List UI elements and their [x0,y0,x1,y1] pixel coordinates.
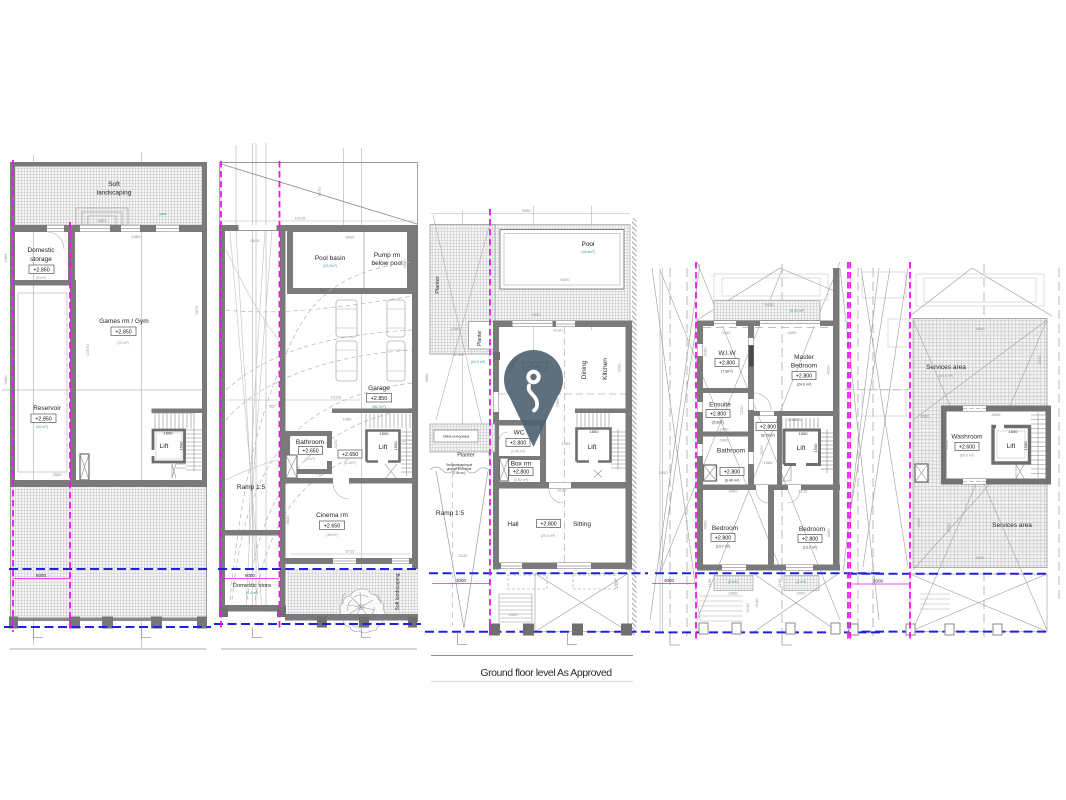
svg-text:9370: 9370 [194,305,199,315]
svg-text:+2.850: +2.850 [115,330,131,336]
svg-text:Pool: Pool [581,241,595,248]
svg-text:10115: 10115 [295,216,307,221]
svg-text:3140: 3140 [754,598,759,608]
svg-text:4200: 4200 [946,523,951,533]
svg-text:565: 565 [269,404,276,409]
svg-text:3400: 3400 [729,489,739,494]
svg-text:1585: 1585 [764,460,774,465]
svg-text:Master: Master [794,354,815,361]
svg-text:landscaping: landscaping [97,190,132,197]
svg-text:+2.800: +2.800 [796,374,812,380]
svg-text:Soft landscaping: Soft landscaping [395,573,401,610]
svg-text:Lift: Lift [379,444,388,451]
svg-text:Lift: Lift [797,445,806,452]
svg-text:Bedroom: Bedroom [712,525,738,532]
svg-text:Soft: Soft [108,181,120,188]
svg-text:-5.100: -5.100 [452,352,464,357]
svg-text:3470: 3470 [759,445,764,455]
svg-text:(86.7m²): (86.7m²) [372,405,386,409]
svg-text:Lift: Lift [588,444,597,451]
svg-text:+2.800: +2.800 [724,470,740,476]
svg-text:Garage: Garage [368,385,390,392]
svg-text:Washroom: Washroom [951,434,982,441]
svg-text:Box rm: Box rm [511,461,532,468]
svg-text:3215: 3215 [799,489,809,494]
svg-text:6000: 6000 [346,235,356,240]
svg-text:1500: 1500 [813,443,818,453]
svg-text:+2.650: +2.650 [342,452,358,458]
svg-text:(7.6m²): (7.6m²) [721,370,733,374]
svg-text:1500: 1500 [164,431,174,436]
svg-text:+2.800: +2.800 [802,537,818,543]
svg-text:Domestic store: Domestic store [233,583,272,589]
svg-text:1500: 1500 [590,429,600,434]
svg-text:+2.850: +2.850 [371,396,387,402]
svg-text:6715: 6715 [346,549,356,554]
svg-text:Dining: Dining [581,360,588,379]
svg-text:Hall: Hall [507,521,519,528]
svg-text:+2.800: +2.800 [719,361,735,367]
svg-text:(2 m²): (2 m²) [796,580,806,584]
svg-text:+2.800: +2.800 [540,522,556,528]
svg-text:1500: 1500 [393,441,398,451]
svg-text:2000: 2000 [729,591,739,596]
svg-text:1000: 1000 [451,326,461,331]
svg-text:3670: 3670 [317,187,322,197]
svg-text:+2.800: +2.800 [760,425,776,431]
svg-text:Kitchen: Kitchen [602,358,609,380]
svg-text:Games rm / Gym: Games rm / Gym [99,318,148,325]
svg-text:(60 m³): (60 m³) [36,425,48,429]
svg-text:3180: 3180 [703,347,708,357]
svg-text:1500: 1500 [799,431,809,436]
svg-text:2850: 2850 [424,373,429,383]
svg-text:2500: 2500 [53,472,63,477]
svg-text:1820: 1820 [98,218,108,223]
svg-text:Planter: Planter [477,330,483,346]
svg-text:2465: 2465 [3,253,8,263]
svg-text:(1.45 m²): (1.45 m²) [511,450,526,454]
svg-text:1100: 1100 [777,578,782,587]
svg-text:Bathroom: Bathroom [717,448,745,455]
svg-text:(6.1m²): (6.1m²) [344,461,356,465]
svg-text:Bedroom: Bedroom [791,363,817,370]
svg-text:9080: 9080 [3,375,8,385]
svg-text:2400: 2400 [720,427,730,432]
svg-text:2800: 2800 [402,259,407,269]
svg-text:Ensuite: Ensuite [709,402,731,409]
svg-text:storage: storage [30,256,52,263]
svg-text:6130: 6130 [558,488,568,493]
svg-text:3000: 3000 [659,470,669,475]
svg-text:Ramp 1:5: Ramp 1:5 [237,484,266,491]
svg-text:Sitting: Sitting [573,521,591,528]
svg-text:9000: 9000 [36,573,47,578]
svg-text:9930: 9930 [522,208,532,213]
svg-text:(5.5m²): (5.5m²) [712,421,724,425]
svg-text:(6.46 m²): (6.46 m²) [725,479,740,483]
svg-text:1500: 1500 [380,431,390,436]
svg-text:(1.62 m²): (1.62 m²) [514,478,529,482]
svg-text:(24.0 m²): (24.0 m²) [797,383,812,387]
svg-text:6000: 6000 [561,277,571,282]
svg-text:5615: 5615 [251,238,261,243]
svg-text:1500: 1500 [1023,441,1028,451]
svg-text:+2.800: +2.800 [710,412,726,418]
svg-text:Planter: Planter [435,276,441,294]
svg-text:4255: 4255 [788,330,798,335]
svg-text:1490: 1490 [562,441,572,446]
svg-text:Bedroom: Bedroom [799,526,825,533]
svg-text:Ground floor level As Approved: Ground floor level As Approved [480,667,612,679]
svg-text:(13.2 m²): (13.2 m²) [803,546,818,550]
svg-text:Domestic: Domestic [27,247,55,254]
svg-text:5085: 5085 [992,412,1002,417]
svg-text:Pump rm: Pump rm [374,252,400,259]
svg-text:Lift: Lift [1007,443,1016,450]
svg-text:+2.650: +2.650 [324,524,340,530]
svg-text:(36 m²): (36 m²) [326,533,338,537]
svg-text:3930: 3930 [285,515,290,525]
svg-text:+2.800: +2.800 [513,470,529,476]
svg-text:1085: 1085 [343,417,353,422]
svg-text:3000: 3000 [873,579,884,584]
svg-text:1100: 1100 [707,578,712,587]
svg-text:4055: 4055 [793,417,803,422]
svg-text:2140: 2140 [745,603,750,613]
svg-text:Reservoir: Reservoir [33,405,62,412]
svg-text:W.I.W: W.I.W [718,350,736,357]
svg-text:2210: 2210 [739,405,744,415]
svg-text:9530: 9530 [532,312,542,317]
svg-text:pavt: pavt [160,212,167,216]
svg-text:+2.850: +2.850 [35,417,51,423]
svg-text:Pool basin: Pool basin [315,255,346,262]
svg-text:Lift: Lift [160,443,169,450]
svg-text:3120: 3120 [459,553,469,558]
svg-text:6640: 6640 [976,555,986,560]
svg-text:4230: 4230 [1037,355,1042,365]
svg-text:4090: 4090 [826,528,831,538]
svg-text:2400: 2400 [720,438,730,443]
svg-text:(94.0 m²): (94.0 m²) [939,374,954,378]
svg-text:+2.650: +2.650 [302,449,318,455]
svg-text:(23.2m²): (23.2m²) [323,264,337,268]
svg-text:3000: 3000 [456,578,467,583]
svg-text:3470: 3470 [944,440,949,450]
svg-text:3000: 3000 [664,578,675,583]
svg-text:(7.5k m²): (7.5k m²) [453,471,466,475]
svg-text:(2 m²): (2 m²) [728,580,738,584]
svg-text:6585: 6585 [921,414,931,419]
svg-text:Services area: Services area [926,364,966,371]
svg-text:(34.0 m²): (34.0 m²) [471,360,486,364]
svg-text:Cinema rm: Cinema rm [316,512,348,519]
svg-text:(25.4 m²): (25.4 m²) [541,534,556,538]
svg-text:4050: 4050 [703,520,708,530]
svg-text:13070: 13070 [85,344,90,356]
svg-text:(4.4 m²): (4.4 m²) [246,591,259,595]
svg-text:(72 m²): (72 m²) [117,341,129,345]
svg-text:6360: 6360 [132,234,142,239]
svg-text:2400: 2400 [722,330,732,335]
svg-text:Ramp 1:5: Ramp 1:5 [436,510,465,517]
svg-text:Planter: Planter [457,453,475,459]
svg-text:+2.850: +2.850 [33,268,49,274]
svg-text:1500: 1500 [1009,429,1019,434]
svg-text:6130: 6130 [554,328,564,333]
svg-text:4230: 4230 [916,518,921,528]
svg-text:(28.8m²): (28.8m²) [581,250,595,254]
svg-text:5435: 5435 [765,302,775,307]
svg-text:(4 m²): (4 m²) [305,457,315,461]
svg-text:Bathroom: Bathroom [296,439,324,446]
svg-text:(50.0 m²): (50.0 m²) [960,454,975,458]
svg-text:4200: 4200 [617,363,622,373]
svg-text:+2.800: +2.800 [510,441,526,447]
svg-text:1500: 1500 [179,441,184,451]
svg-text:Olea europaea: Olea europaea [443,434,470,439]
svg-text:-1000: -1000 [614,579,619,590]
svg-text:2000: 2000 [797,591,807,596]
svg-text:1500: 1500 [509,612,519,617]
svg-text:WC: WC [514,430,525,437]
svg-text:Services area: Services area [992,522,1032,529]
svg-text:+2.600: +2.600 [959,445,975,451]
svg-text:(13.7 m²): (13.7 m²) [716,545,731,549]
svg-text:+2.800: +2.800 [715,536,731,542]
svg-text:1570: 1570 [316,471,326,476]
svg-text:3470: 3470 [333,439,338,449]
svg-text:6640: 6640 [976,326,986,331]
svg-text:(5.43 m²): (5.43 m²) [790,309,805,313]
svg-text:9000: 9000 [245,573,256,578]
svg-text:4320: 4320 [826,365,831,375]
svg-text:10115: 10115 [331,395,343,400]
svg-text:(8.75m²): (8.75m²) [761,434,775,438]
